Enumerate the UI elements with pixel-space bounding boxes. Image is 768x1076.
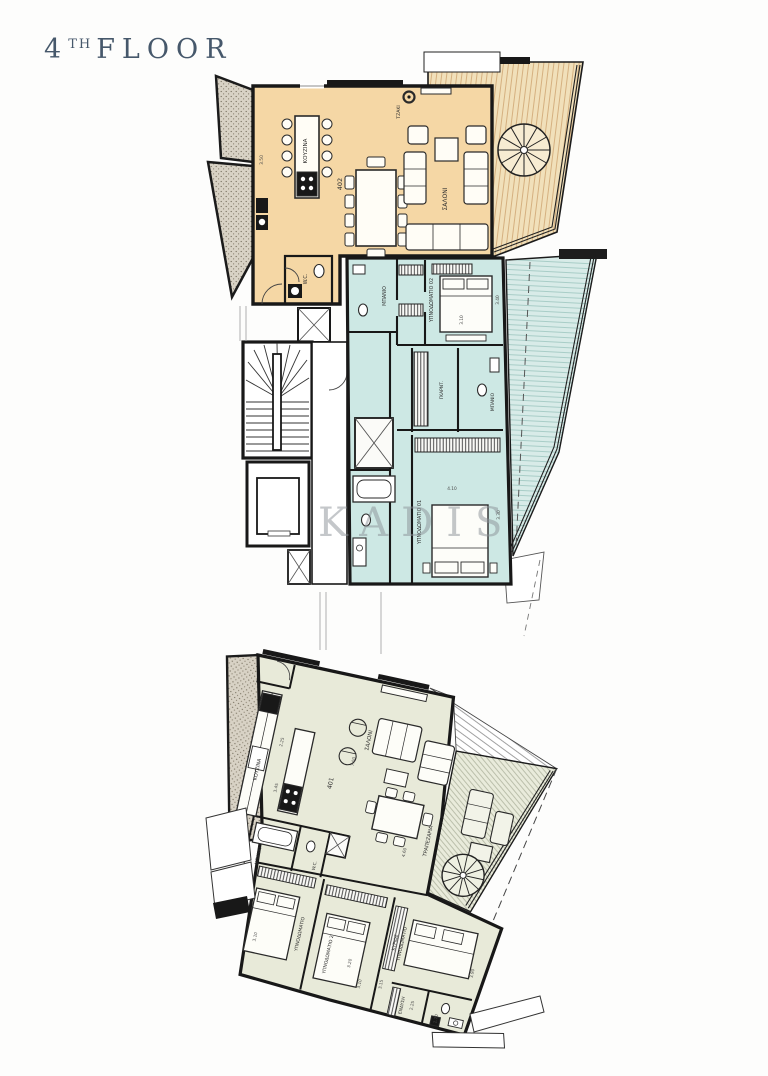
dim-402-side: 3.50 xyxy=(259,155,265,165)
balcony-403 xyxy=(506,254,597,556)
bed-403-02 xyxy=(440,276,492,341)
wardrobe-403-c xyxy=(432,264,472,274)
balcony-402-lower xyxy=(208,162,253,297)
balcony-403-header xyxy=(559,249,607,259)
page-title: 4THFLOOR xyxy=(44,34,232,65)
closet-403 xyxy=(414,352,428,426)
floorplan-page: 4THFLOOR xyxy=(0,0,768,1076)
floor-word: FLOOR xyxy=(96,34,232,65)
wardrobe-403-a xyxy=(399,265,423,275)
spiral-stair-402 xyxy=(498,124,550,176)
dim-403-b02h: 3.40 xyxy=(495,295,501,305)
floor-number: 4 xyxy=(44,34,68,65)
label-403-bedroom02: ΥΠΝΟΔΩΜΑΤΙΟ 02 xyxy=(429,278,435,323)
watermark: KADIS xyxy=(318,500,515,546)
wardrobe-403-b xyxy=(399,304,423,316)
unit-403: ΜΠΑΝΙΟ ΥΠΝΟΔΩΜΑΤΙΟ 02 ΓΚΑΡΝΤ. ΜΠΑΝΙΟ ΥΠΝ… xyxy=(347,249,607,636)
floor-ordinal: TH xyxy=(68,37,92,52)
top-wall-bar xyxy=(327,80,403,86)
lobby xyxy=(312,342,347,584)
dim-403-b01w: 4.10 xyxy=(447,486,457,492)
elevator-door xyxy=(268,531,290,536)
label-402-kitchen: ΚΟΥΖΙΝΑ xyxy=(303,138,309,163)
label-403-bath1: ΜΠΑΝΙΟ xyxy=(382,286,388,306)
label-402-number: 402 xyxy=(336,178,344,190)
balcony-402-upper xyxy=(216,76,253,162)
elevator-cab xyxy=(257,478,299,534)
terrace-header xyxy=(500,57,530,64)
stair-spine xyxy=(273,354,281,450)
label-402-fireplace: ΤΖΑΚΙ xyxy=(396,105,402,119)
label-403-bath2: ΜΠΑΝΙΟ xyxy=(490,392,496,411)
label-402-living: ΣΑΛΟΝΙ xyxy=(442,187,449,210)
label-402-wc: W.C. xyxy=(303,274,309,285)
label-403-closet: ΓΚΑΡΝΤ. xyxy=(439,381,445,399)
dim-403-b02w: 3.10 xyxy=(459,315,465,325)
terrace-beam xyxy=(424,52,500,72)
wardrobe-403-master xyxy=(415,438,500,452)
